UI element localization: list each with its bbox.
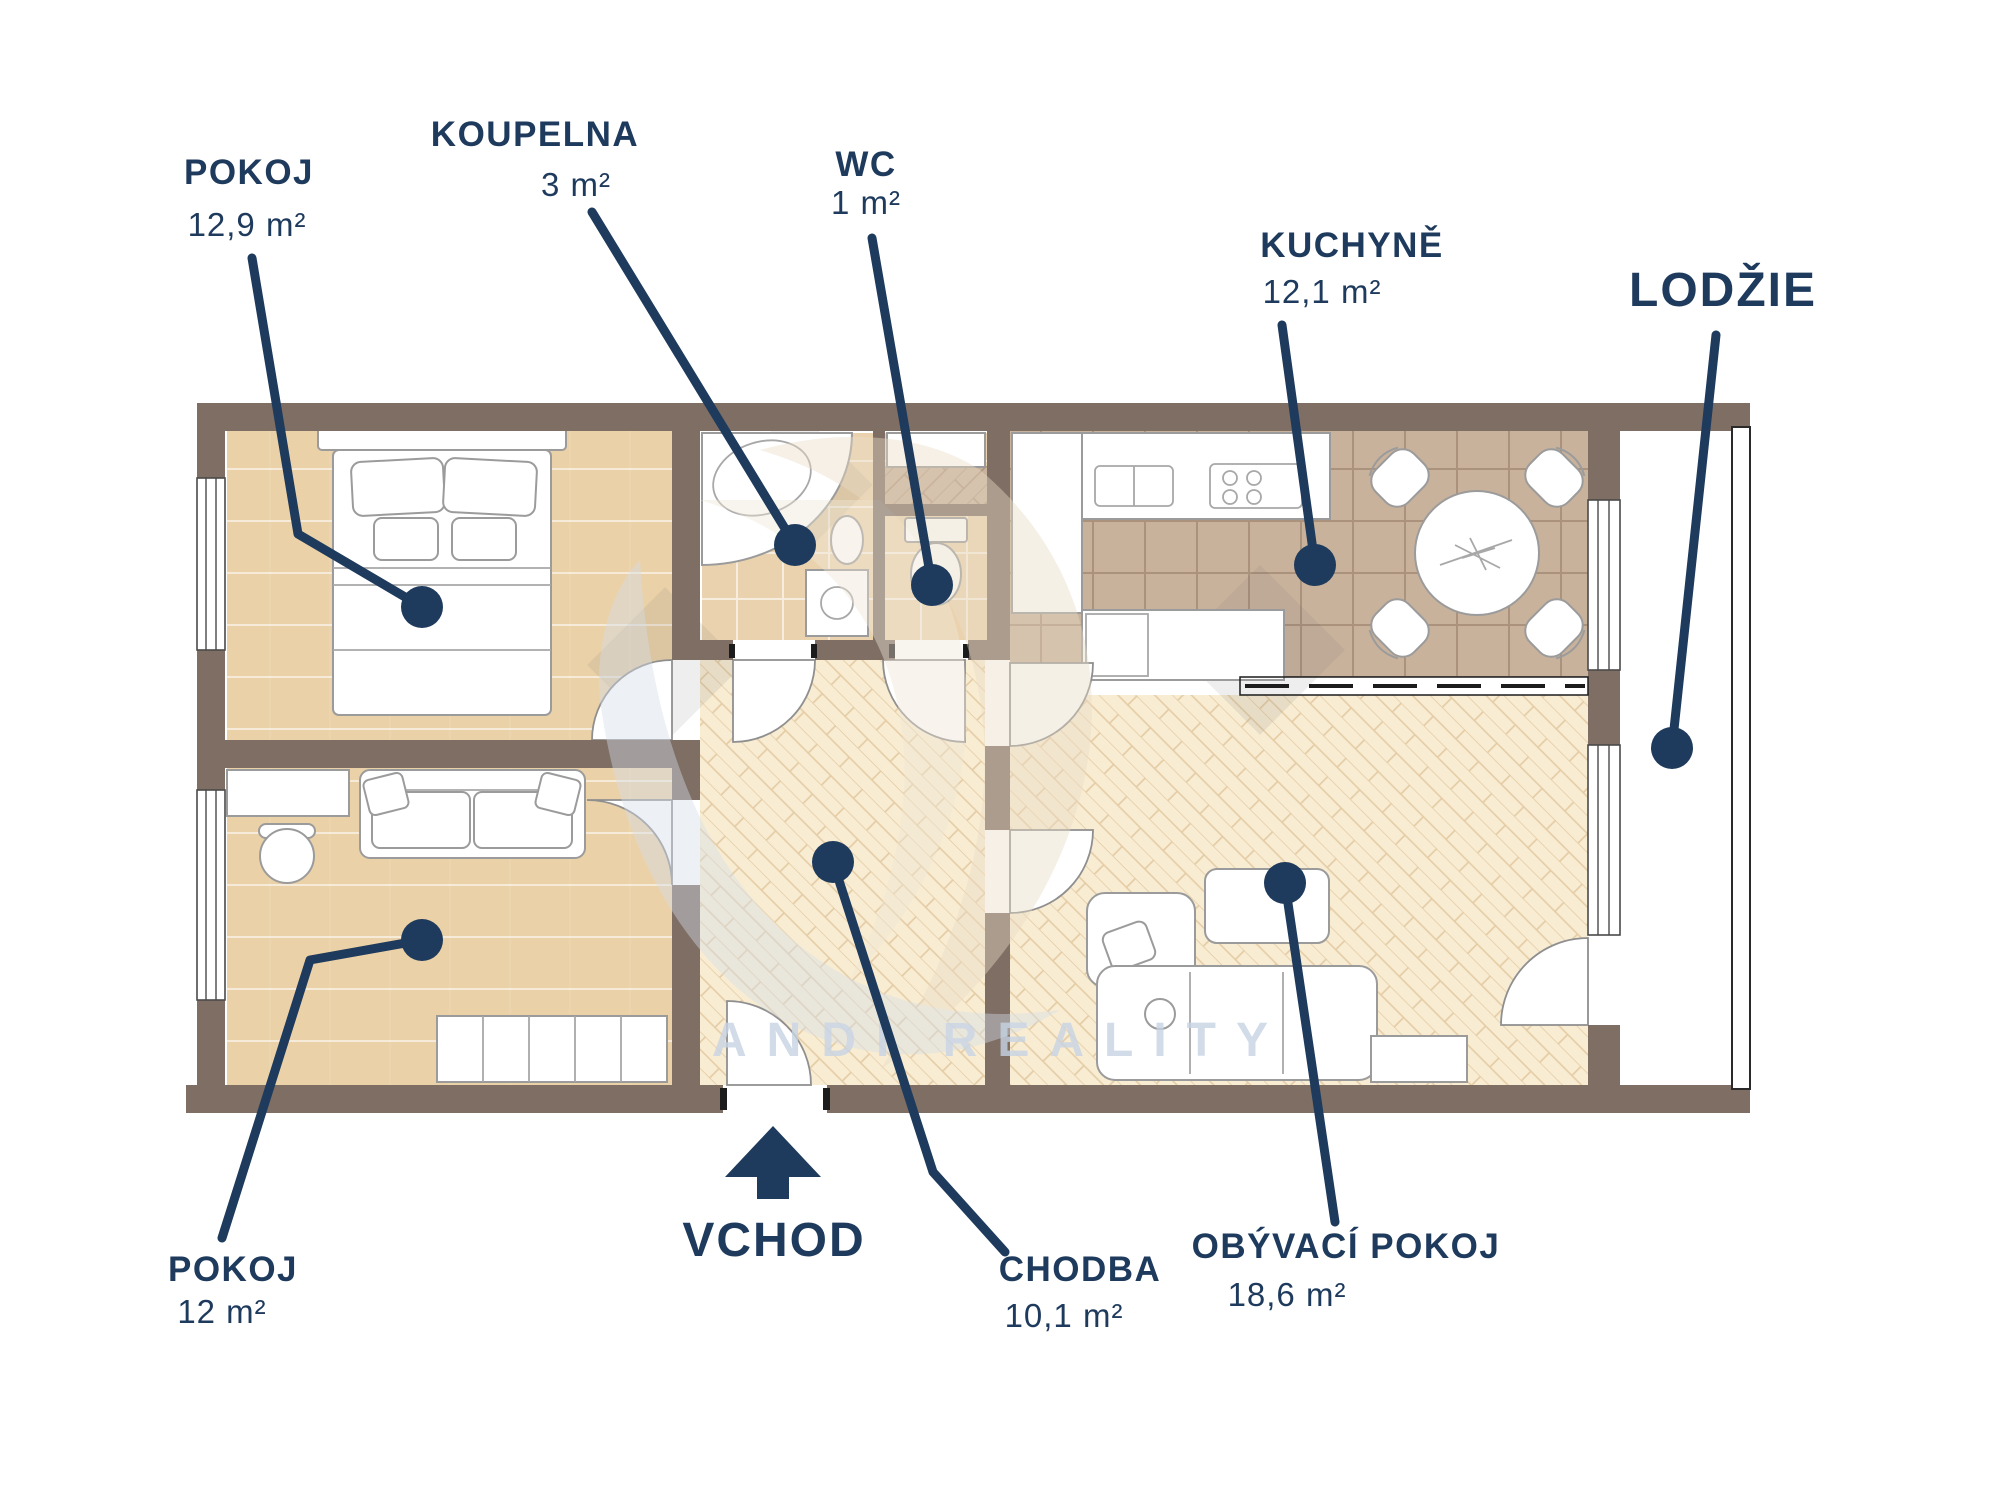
label-vchod: VCHOD [682, 1126, 865, 1267]
tv-stand [1371, 1036, 1467, 1082]
wardrobe [437, 1016, 667, 1082]
floor-plan: ANDI REALITY POKOJ 12,9 m² KOUPELNA 3 m²… [0, 0, 2000, 1500]
room-area: 3 m² [541, 166, 611, 203]
label-pokoj-top: POKOJ 12,9 m² [184, 153, 314, 243]
window [197, 478, 225, 650]
label-pokoj-bottom: POKOJ 12 m² [168, 1250, 298, 1330]
window [197, 790, 225, 1000]
room-area: 12 m² [177, 1293, 266, 1330]
room-area: 10,1 m² [1005, 1297, 1124, 1334]
dot-pokoj-top [401, 586, 443, 628]
dot-obyvaci [1264, 862, 1306, 904]
room-name: WC [835, 145, 896, 184]
room-area: 18,6 m² [1228, 1276, 1347, 1313]
label-koupelna: KOUPELNA 3 m² [431, 115, 639, 203]
room-name: LODŽIE [1629, 262, 1817, 317]
room-name: POKOJ [184, 153, 314, 192]
label-wc: WC 1 m² [831, 145, 901, 221]
room-area: 12,1 m² [1263, 273, 1382, 310]
label-obyvaci: OBÝVACÍ POKOJ 18,6 m² [1192, 1226, 1501, 1313]
kitchen-bench [1082, 610, 1284, 680]
window [1588, 745, 1620, 935]
dot-kuchyne [1294, 544, 1336, 586]
desk [227, 770, 349, 816]
window [1588, 500, 1620, 670]
floor-plan-drawing: ANDI REALITY POKOJ 12,9 m² KOUPELNA 3 m²… [0, 0, 2000, 1500]
room-name: CHODBA [999, 1250, 1162, 1289]
room-name: KUCHYNĚ [1260, 225, 1444, 265]
watermark-text: ANDI REALITY [712, 1014, 1288, 1067]
entrance-label: VCHOD [682, 1214, 865, 1267]
room-name: POKOJ [168, 1250, 298, 1289]
room-name: OBÝVACÍ POKOJ [1192, 1226, 1501, 1266]
dot-lodzie [1651, 727, 1693, 769]
room-area: 1 m² [831, 184, 901, 221]
room-area: 12,9 m² [188, 206, 307, 243]
dot-koupelna [774, 524, 816, 566]
sofa-small [360, 770, 585, 858]
dot-chodba [812, 841, 854, 883]
entrance-arrow-stem [757, 1177, 789, 1199]
dot-pokoj-bottom [401, 919, 443, 961]
label-kuchyne: KUCHYNĚ 12,1 m² [1260, 225, 1444, 310]
loggia-railing [1732, 427, 1750, 1089]
label-lodzie: LODŽIE [1629, 262, 1817, 317]
dot-wc [911, 564, 953, 606]
entrance-arrow-icon [725, 1126, 821, 1177]
label-chodba: CHODBA 10,1 m² [999, 1250, 1162, 1334]
room-name: KOUPELNA [431, 115, 639, 154]
office-chair [259, 824, 315, 883]
